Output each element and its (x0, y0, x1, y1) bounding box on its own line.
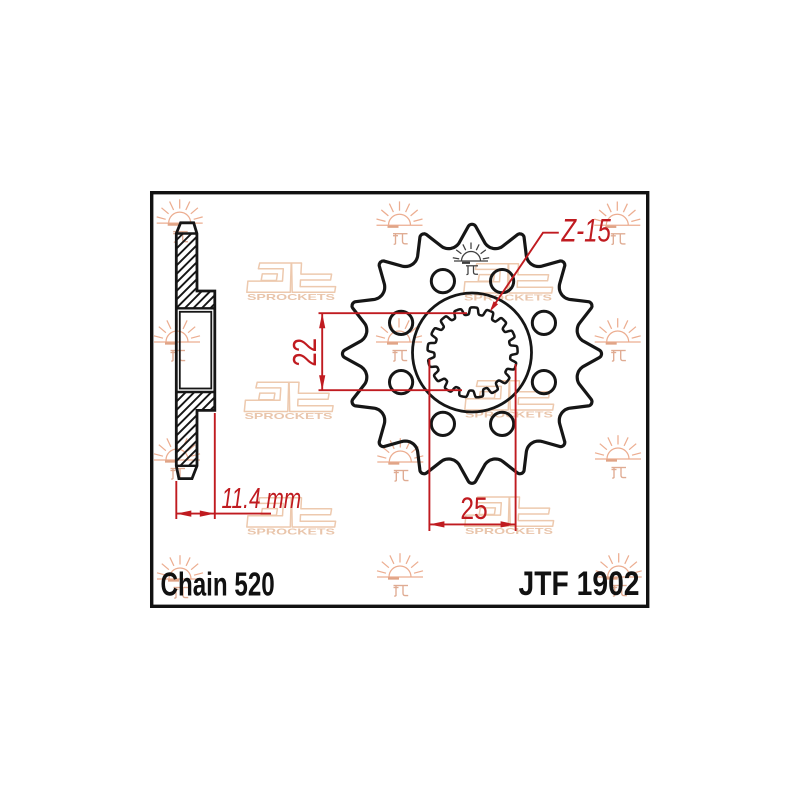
svg-text:Z-15: Z-15 (561, 212, 611, 248)
svg-text:Chain 520: Chain 520 (161, 567, 275, 603)
svg-text:11.4 mm: 11.4 mm (222, 483, 302, 515)
svg-text:JTF 1902: JTF 1902 (519, 563, 640, 602)
svg-text:22: 22 (287, 338, 324, 367)
svg-text:25: 25 (460, 490, 487, 526)
